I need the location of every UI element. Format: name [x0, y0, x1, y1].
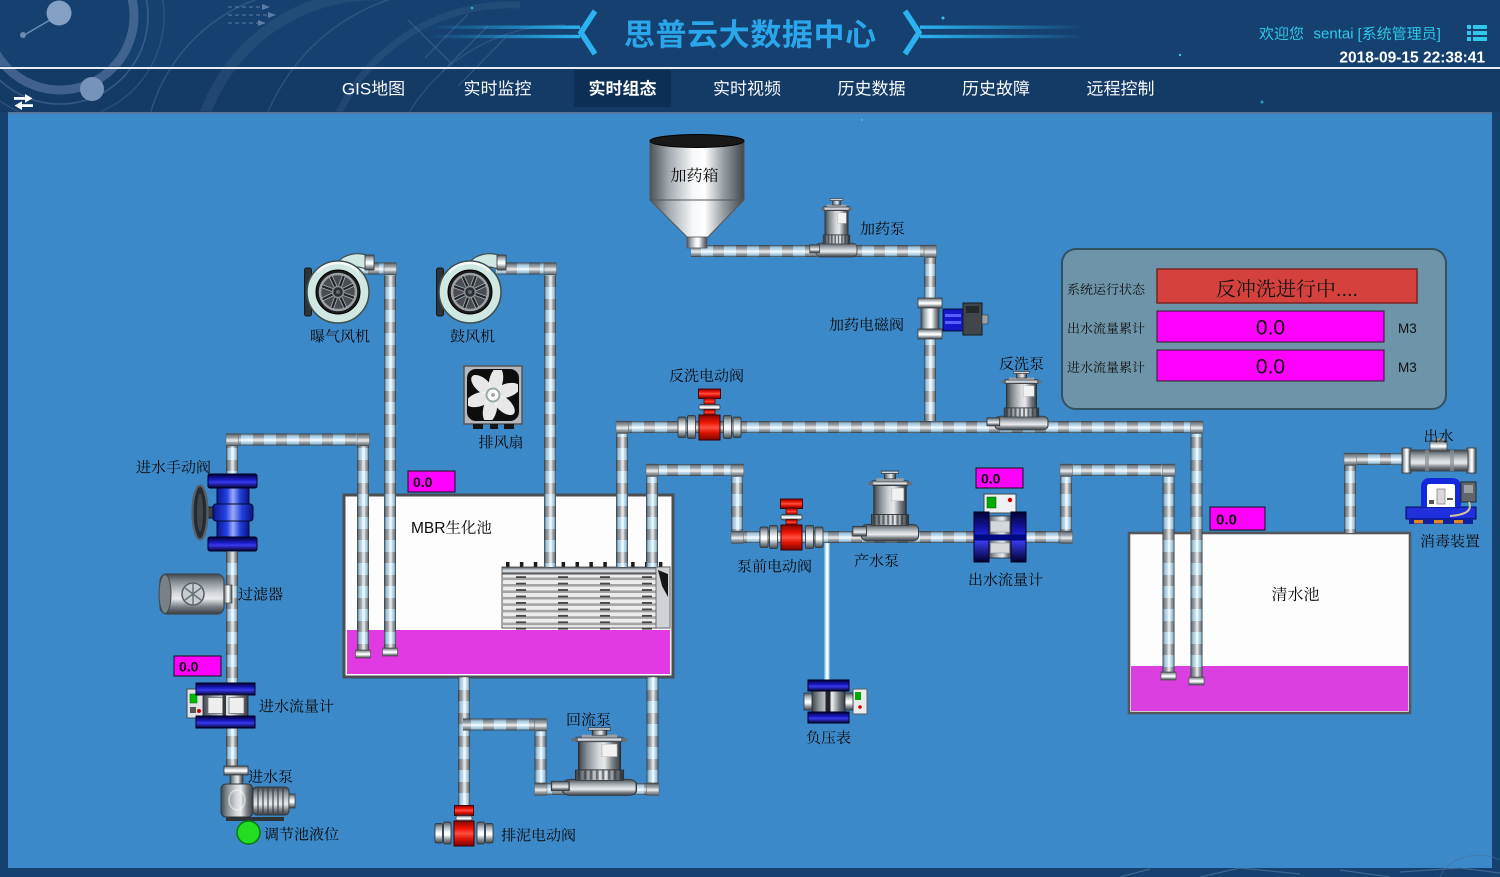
svg-text:0.0: 0.0	[1256, 356, 1285, 379]
svg-text:M3: M3	[1398, 360, 1417, 375]
svg-text:0.0: 0.0	[981, 471, 1001, 487]
svg-text:0.0: 0.0	[1256, 317, 1285, 340]
svg-text:....: ....	[1336, 279, 1358, 301]
svg-text:[: [	[1358, 26, 1363, 43]
svg-text:0.0: 0.0	[413, 474, 433, 490]
svg-text:]: ]	[1437, 26, 1441, 43]
svg-text:M3: M3	[1398, 321, 1417, 336]
svg-text:GIS: GIS	[342, 80, 371, 99]
svg-text:0.0: 0.0	[179, 659, 199, 675]
svg-text:2018-09-15 22:38:41: 2018-09-15 22:38:41	[1339, 50, 1485, 67]
svg-text:MBR: MBR	[411, 520, 445, 537]
svg-text:sentai: sentai	[1314, 26, 1354, 43]
svg-text:0.0: 0.0	[1216, 512, 1237, 529]
